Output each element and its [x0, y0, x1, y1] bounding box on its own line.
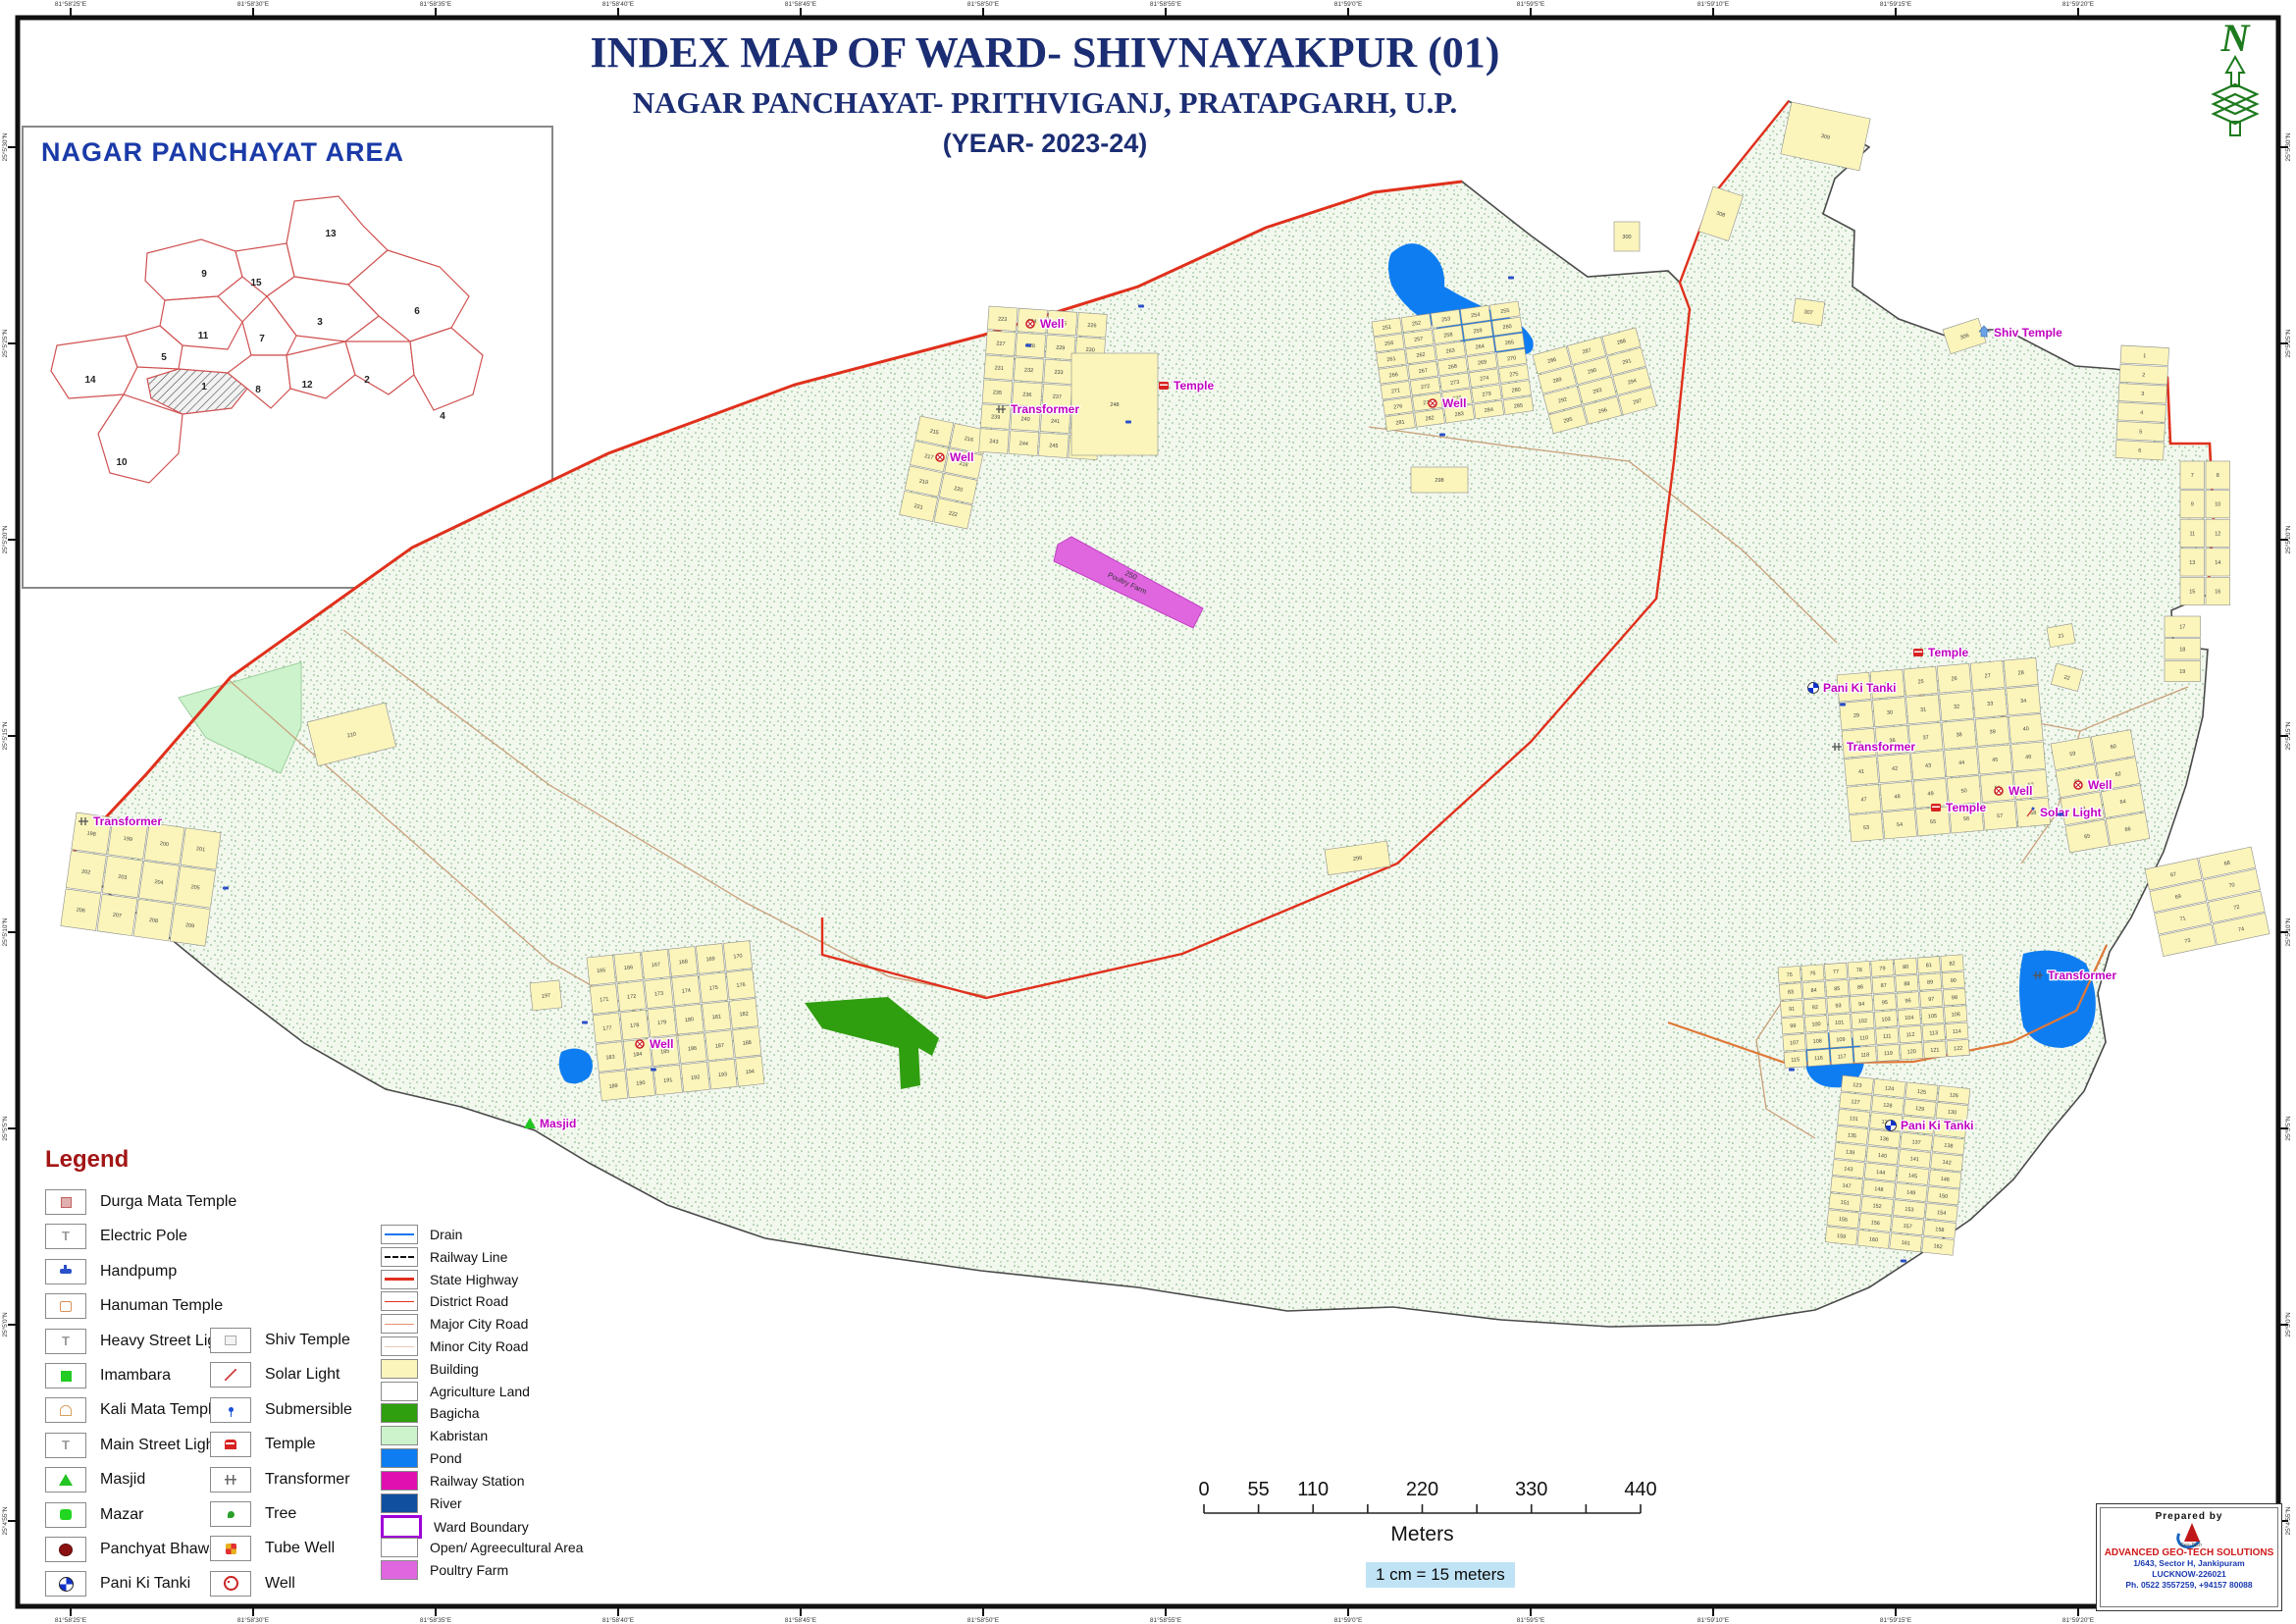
- legend-label: Durga Mata Temple: [100, 1193, 236, 1211]
- legend-item: Building: [381, 1359, 479, 1379]
- svg-text:11: 11: [198, 331, 209, 341]
- well-icon: [210, 1571, 251, 1597]
- pole-icon: T: [45, 1433, 86, 1458]
- legend-label: Shiv Temple: [265, 1332, 350, 1349]
- map-label: Transformer: [93, 814, 162, 828]
- inset-ward-4: [410, 328, 483, 410]
- svg-text:47: 47: [1860, 797, 1867, 804]
- svg-text:84: 84: [1810, 988, 1817, 994]
- svg-text:240: 240: [1020, 416, 1030, 423]
- handpump-icon: [2058, 813, 2063, 816]
- svg-text:14: 14: [2215, 560, 2220, 566]
- svg-text:2: 2: [364, 375, 370, 386]
- handpump-icon: [1125, 421, 1131, 424]
- svg-text:202: 202: [81, 869, 91, 876]
- shiv-icon: [210, 1328, 251, 1353]
- inset-title: NAGAR PANCHAYAT AREA: [41, 137, 404, 168]
- legend-item: Submersible: [210, 1397, 352, 1423]
- svg-text:139: 139: [1846, 1149, 1855, 1156]
- svg-text:37: 37: [1922, 735, 1929, 742]
- legend-swatch-outline: [381, 1515, 422, 1539]
- handpump-icon: [1439, 434, 1445, 437]
- building-cluster-67-74: 6768697071727374: [2145, 847, 2270, 957]
- svg-text:60: 60: [2110, 744, 2116, 751]
- inset-ward-12: [287, 341, 355, 398]
- sub-icon: [210, 1397, 251, 1423]
- inset-ward-map: 139156311751418122410: [51, 196, 483, 483]
- svg-text:100: 100: [1811, 1022, 1821, 1028]
- legend-item: Bagicha: [381, 1403, 480, 1423]
- tanki-icon: [45, 1571, 86, 1597]
- svg-text:25°5'30"N: 25°5'30"N: [1, 132, 9, 161]
- svg-text:25°5'0"N: 25°5'0"N: [1, 1312, 9, 1337]
- svg-text:Meters: Meters: [1390, 1523, 1453, 1545]
- map-label: Transformer: [1011, 402, 1079, 416]
- svg-text:25°5'15"N: 25°5'15"N: [1, 721, 9, 750]
- svg-text:261: 261: [1386, 356, 1396, 363]
- legend-label: Kabristan: [430, 1428, 488, 1443]
- svg-text:81°58'30"E: 81°58'30"E: [237, 1616, 270, 1624]
- legend-item: State Highway: [381, 1270, 518, 1289]
- svg-text:260: 260: [1502, 324, 1512, 331]
- svg-text:194: 194: [746, 1069, 756, 1075]
- svg-text:66: 66: [2124, 826, 2131, 833]
- svg-text:144: 144: [1876, 1170, 1886, 1177]
- svg-text:169: 169: [705, 956, 715, 963]
- svg-text:283: 283: [1454, 411, 1464, 418]
- svg-text:81: 81: [1926, 963, 1933, 969]
- svg-text:165: 165: [597, 968, 606, 974]
- building-197: 197: [530, 980, 562, 1011]
- svg-text:263: 263: [1445, 348, 1455, 355]
- svg-text:122: 122: [1954, 1046, 1963, 1053]
- svg-text:207: 207: [112, 913, 122, 919]
- svg-text:81°59'15"E: 81°59'15"E: [1880, 0, 1912, 8]
- temple-icon: [210, 1432, 251, 1457]
- durga-icon: [45, 1189, 86, 1215]
- svg-text:81°58'35"E: 81°58'35"E: [420, 1616, 452, 1624]
- svg-text:43: 43: [1925, 763, 1932, 770]
- svg-text:118: 118: [1860, 1052, 1869, 1059]
- svg-text:274: 274: [1480, 376, 1489, 383]
- svg-text:156: 156: [1870, 1220, 1880, 1227]
- svg-text:105: 105: [1928, 1014, 1938, 1021]
- svg-text:N: N: [2220, 16, 2252, 60]
- svg-text:74: 74: [2238, 926, 2245, 933]
- svg-text:81°58'30"E: 81°58'30"E: [237, 0, 270, 8]
- legend-label: Pond: [430, 1450, 462, 1466]
- main-map-svg: 81°58'25"E81°58'25"E81°58'30"E81°58'30"E…: [0, 0, 2296, 1624]
- legend-label: Well: [265, 1575, 295, 1593]
- svg-text:184: 184: [633, 1052, 643, 1059]
- svg-text:152: 152: [1872, 1203, 1882, 1210]
- svg-text:177: 177: [602, 1025, 612, 1032]
- handpump-icon: [1138, 305, 1144, 308]
- svg-text:17: 17: [2179, 625, 2185, 631]
- svg-text:25°5'20"N: 25°5'20"N: [1, 525, 9, 553]
- svg-text:25°5'5"N: 25°5'5"N: [2284, 1116, 2292, 1141]
- svg-text:166: 166: [624, 965, 634, 971]
- svg-text:81°59'5"E: 81°59'5"E: [1517, 1616, 1545, 1624]
- svg-text:9: 9: [201, 269, 207, 280]
- svg-text:183: 183: [605, 1054, 615, 1061]
- svg-text:298: 298: [1435, 478, 1443, 484]
- svg-text:128: 128: [1883, 1103, 1893, 1110]
- svg-text:190: 190: [636, 1080, 646, 1087]
- legend-swatch-fill: [381, 1359, 418, 1379]
- svg-text:192: 192: [691, 1074, 701, 1081]
- svg-text:62: 62: [2114, 771, 2121, 778]
- legend-item: Mazar: [45, 1502, 143, 1528]
- svg-text:167: 167: [652, 962, 661, 969]
- svg-text:88: 88: [1904, 981, 1910, 987]
- handpump-icon: [582, 1022, 588, 1024]
- page-subtitle: NAGAR PANCHAYAT- PRITHVIGANJ, PRATAPGARH…: [549, 85, 1540, 121]
- svg-text:130: 130: [1948, 1109, 1957, 1116]
- svg-text:111: 111: [1883, 1033, 1892, 1040]
- svg-text:46: 46: [2025, 755, 2032, 761]
- svg-text:149: 149: [1906, 1190, 1916, 1197]
- svg-text:230: 230: [1085, 347, 1095, 354]
- legend-title: Legend: [45, 1146, 129, 1174]
- legend-label: Hanuman Temple: [100, 1297, 223, 1315]
- svg-text:236: 236: [1022, 392, 1032, 398]
- legend-item: THeavy Street Light: [45, 1329, 230, 1354]
- map-label: Solar Light: [2040, 806, 2102, 819]
- svg-text:107: 107: [1790, 1040, 1800, 1047]
- building-300: 300: [1614, 222, 1640, 251]
- svg-text:10: 10: [116, 457, 128, 468]
- svg-text:33: 33: [1987, 702, 1994, 708]
- legend-label: Open/ Agreecultural Area: [430, 1540, 583, 1555]
- legend-label: Railway Line: [430, 1249, 507, 1265]
- svg-text:13: 13: [2189, 560, 2195, 566]
- svg-text:120: 120: [1906, 1049, 1916, 1056]
- svg-text:154: 154: [1937, 1210, 1947, 1217]
- scale-note: 1 cm = 15 meters: [1366, 1562, 1515, 1588]
- svg-text:187: 187: [715, 1043, 725, 1050]
- svg-text:209: 209: [185, 922, 195, 929]
- svg-text:140: 140: [1878, 1153, 1888, 1160]
- svg-text:7: 7: [2191, 473, 2194, 479]
- mazar-icon: [45, 1502, 86, 1528]
- svg-text:81°58'35"E: 81°58'35"E: [420, 0, 452, 8]
- svg-text:227: 227: [996, 341, 1006, 347]
- svg-text:71: 71: [2179, 916, 2186, 922]
- handpump-icon: [223, 887, 229, 890]
- legend-item: Minor City Road: [381, 1336, 528, 1356]
- company-address-2: LUCKNOW-226021: [2101, 1569, 2277, 1580]
- svg-text:114: 114: [1953, 1028, 1961, 1035]
- svg-text:6: 6: [414, 306, 420, 317]
- svg-text:181: 181: [711, 1014, 721, 1021]
- svg-text:148: 148: [1874, 1186, 1884, 1193]
- svg-text:12: 12: [301, 380, 313, 391]
- svg-text:55: 55: [1248, 1479, 1270, 1500]
- handpump-icon: [1789, 1069, 1795, 1072]
- svg-text:245: 245: [1049, 443, 1059, 449]
- svg-text:25°5'5"N: 25°5'5"N: [1, 1116, 9, 1141]
- svg-text:19: 19: [2179, 669, 2185, 675]
- legend-swatch-fill: [381, 1471, 418, 1491]
- legend-label: Mazar: [100, 1506, 143, 1524]
- svg-text:32: 32: [1954, 705, 1960, 711]
- map-label: Well: [2009, 784, 2032, 798]
- svg-text:121: 121: [1930, 1047, 1940, 1054]
- page-title: INDEX MAP OF WARD- SHIVNAYAKPUR (01): [549, 27, 1540, 78]
- svg-text:188: 188: [742, 1040, 752, 1047]
- svg-text:172: 172: [627, 994, 637, 1001]
- temple-icon: [1913, 649, 1923, 656]
- inset-ward-14: [51, 336, 137, 398]
- svg-text:330: 330: [1515, 1479, 1547, 1500]
- svg-text:159: 159: [1837, 1233, 1847, 1240]
- svg-text:226: 226: [1087, 323, 1097, 330]
- svg-text:7: 7: [259, 334, 265, 344]
- svg-text:276: 276: [1393, 403, 1403, 410]
- svg-text:123: 123: [1852, 1082, 1862, 1089]
- svg-text:5: 5: [161, 352, 167, 363]
- handpump-icon: [651, 1069, 656, 1072]
- svg-text:269: 269: [1478, 359, 1487, 366]
- svg-text:170: 170: [733, 954, 743, 961]
- company-address-1: 1/643, Sector H, Jankipuram: [2101, 1558, 2277, 1569]
- legend-item: Agriculture Land: [381, 1382, 530, 1401]
- svg-text:81°59'0"E: 81°59'0"E: [1334, 0, 1363, 8]
- imambara-icon: [45, 1363, 86, 1388]
- svg-text:25°5'30"N: 25°5'30"N: [2284, 132, 2292, 161]
- svg-text:106: 106: [1951, 1012, 1960, 1019]
- svg-text:197: 197: [542, 993, 551, 1000]
- map-label: Temple: [1946, 801, 1986, 814]
- legend-label: Drain: [430, 1227, 462, 1242]
- svg-text:89: 89: [1927, 979, 1934, 985]
- legend-item: Poultry Farm: [381, 1560, 508, 1580]
- svg-text:179: 179: [657, 1020, 667, 1026]
- legend-swatch-fill: [381, 1493, 418, 1513]
- svg-text:102: 102: [1858, 1019, 1868, 1025]
- svg-text:251: 251: [1383, 325, 1392, 332]
- svg-text:75: 75: [1787, 972, 1794, 978]
- svg-text:15: 15: [2189, 590, 2195, 596]
- legend-item: Panchyat Bhawan: [45, 1537, 227, 1562]
- svg-text:95: 95: [1882, 1000, 1889, 1006]
- svg-text:244: 244: [1019, 441, 1029, 447]
- svg-text:25°5'20"N: 25°5'20"N: [2284, 525, 2292, 553]
- svg-text:168: 168: [678, 959, 688, 966]
- svg-text:25°5'10"N: 25°5'10"N: [1, 917, 9, 946]
- masjid-icon: [45, 1467, 86, 1493]
- svg-text:81°58'25"E: 81°58'25"E: [55, 0, 87, 8]
- svg-text:6: 6: [2138, 448, 2141, 454]
- svg-text:82: 82: [1949, 961, 1956, 967]
- svg-text:182: 182: [739, 1011, 749, 1018]
- svg-text:186: 186: [688, 1046, 698, 1053]
- legend-item: Solar Light: [210, 1362, 340, 1388]
- legend-label: Ward Boundary: [434, 1519, 529, 1535]
- handpump-icon: [1508, 277, 1514, 280]
- svg-text:49: 49: [1927, 791, 1934, 798]
- svg-text:124: 124: [1885, 1085, 1895, 1092]
- legend-label: Panchyat Bhawan: [100, 1541, 227, 1558]
- svg-text:142: 142: [1942, 1160, 1952, 1167]
- legend-item: Imambara: [45, 1363, 171, 1388]
- well-icon: [2074, 781, 2082, 789]
- svg-text:81°59'20"E: 81°59'20"E: [2062, 1616, 2095, 1624]
- svg-text:5: 5: [2139, 429, 2142, 435]
- svg-text:15: 15: [250, 278, 262, 288]
- legend-swatch-line: [381, 1314, 418, 1334]
- legend-item: Kabristan: [381, 1426, 488, 1445]
- svg-text:78: 78: [1856, 968, 1863, 973]
- legend-label: Major City Road: [430, 1316, 528, 1332]
- svg-text:273: 273: [1450, 380, 1460, 387]
- svg-text:189: 189: [608, 1083, 618, 1090]
- legend-label: Electric Pole: [100, 1228, 187, 1245]
- svg-text:81°59'10"E: 81°59'10"E: [1697, 1616, 1730, 1624]
- svg-text:2: 2: [2142, 372, 2145, 378]
- svg-text:162: 162: [1933, 1243, 1943, 1250]
- svg-text:176: 176: [736, 982, 746, 989]
- legend-label: Tube Well: [265, 1540, 335, 1557]
- map-label: Well: [1442, 396, 1466, 410]
- svg-text:11: 11: [2189, 531, 2195, 537]
- legend-label: Tree: [265, 1505, 296, 1523]
- legend-label: Masjid: [100, 1471, 145, 1489]
- svg-text:8: 8: [255, 385, 261, 395]
- svg-text:145: 145: [1908, 1173, 1918, 1179]
- legend-label: Handpump: [100, 1263, 177, 1281]
- svg-text:108: 108: [1813, 1038, 1823, 1045]
- svg-text:307: 307: [1803, 309, 1813, 316]
- svg-text:91: 91: [1789, 1007, 1796, 1013]
- legend-label: Minor City Road: [430, 1338, 528, 1354]
- svg-text:119: 119: [1884, 1051, 1893, 1058]
- legend-swatch-line: [381, 1225, 418, 1244]
- svg-text:191: 191: [663, 1077, 673, 1084]
- svg-text:146: 146: [1940, 1177, 1950, 1183]
- legend-label: Poultry Farm: [430, 1562, 508, 1578]
- svg-text:284: 284: [1484, 407, 1493, 414]
- legend-item: Railway Line: [381, 1247, 507, 1267]
- svg-text:25°5'0"N: 25°5'0"N: [2284, 1312, 2292, 1337]
- svg-text:201: 201: [196, 846, 206, 853]
- svg-text:267: 267: [1418, 368, 1428, 375]
- svg-text:76: 76: [1809, 970, 1816, 976]
- well-icon: [936, 453, 944, 461]
- svg-text:25°5'25"N: 25°5'25"N: [2284, 329, 2292, 357]
- svg-text:92: 92: [1812, 1005, 1819, 1011]
- svg-text:81°59'0"E: 81°59'0"E: [1334, 1616, 1363, 1624]
- svg-text:4: 4: [440, 411, 445, 422]
- svg-text:29: 29: [1853, 712, 1860, 719]
- svg-text:27: 27: [1984, 673, 1991, 680]
- legend-label: Solar Light: [265, 1366, 340, 1384]
- svg-text:113: 113: [1929, 1030, 1938, 1037]
- svg-text:59: 59: [2069, 751, 2076, 758]
- svg-text:285: 285: [1514, 403, 1524, 410]
- svg-text:266: 266: [1388, 372, 1398, 379]
- company-name: ADVANCED GEO-TECH SOLUTIONS: [2101, 1547, 2277, 1558]
- legend-item: Masjid: [45, 1467, 145, 1493]
- svg-text:26: 26: [1951, 676, 1957, 683]
- svg-text:85: 85: [1834, 986, 1841, 992]
- svg-text:175: 175: [708, 985, 718, 992]
- svg-text:262: 262: [1416, 352, 1426, 359]
- building-cluster-17-19: 171819: [2165, 616, 2201, 682]
- legend-item: Durga Mata Temple: [45, 1189, 236, 1215]
- map-label: Well: [950, 450, 973, 464]
- inset-ward-2: [345, 341, 414, 394]
- svg-text:109: 109: [1836, 1037, 1846, 1044]
- svg-text:80: 80: [1903, 965, 1909, 970]
- legend-item: District Road: [381, 1291, 508, 1311]
- svg-text:143: 143: [1844, 1167, 1853, 1174]
- svg-text:69: 69: [2174, 894, 2181, 901]
- svg-text:81°58'45"E: 81°58'45"E: [785, 1616, 817, 1624]
- legend-label: River: [430, 1495, 462, 1511]
- legend-label: Railway Station: [430, 1473, 525, 1489]
- svg-text:103: 103: [1881, 1017, 1891, 1023]
- svg-text:56: 56: [1963, 816, 1970, 823]
- svg-text:81°58'50"E: 81°58'50"E: [967, 1616, 1000, 1624]
- svg-text:255: 255: [1500, 308, 1510, 315]
- map-label: Transformer: [2048, 969, 2116, 982]
- svg-text:1: 1: [201, 382, 207, 393]
- legend-item: Major City Road: [381, 1314, 528, 1334]
- svg-text:25°4'55"N: 25°4'55"N: [2284, 1506, 2292, 1535]
- svg-text:235: 235: [993, 390, 1003, 396]
- legend-item: TMain Street Light: [45, 1433, 219, 1458]
- handpump-icon: [45, 1259, 86, 1284]
- svg-text:129: 129: [1915, 1106, 1925, 1113]
- svg-text:39: 39: [1989, 729, 1996, 736]
- svg-text:252: 252: [1412, 321, 1422, 328]
- svg-text:83: 83: [1788, 989, 1795, 995]
- panchyat-icon: [45, 1537, 86, 1562]
- legend-swatch-fill: [381, 1403, 418, 1423]
- svg-text:70: 70: [2228, 882, 2235, 889]
- svg-text:158: 158: [1935, 1227, 1945, 1233]
- svg-text:81°59'15"E: 81°59'15"E: [1880, 1616, 1912, 1624]
- svg-text:31: 31: [1920, 707, 1927, 713]
- svg-text:229: 229: [1056, 345, 1066, 352]
- svg-text:280: 280: [1511, 387, 1521, 393]
- svg-text:239: 239: [991, 414, 1001, 421]
- svg-text:94: 94: [1858, 1002, 1865, 1008]
- svg-text:41: 41: [1858, 769, 1865, 776]
- svg-text:204: 204: [154, 879, 164, 886]
- svg-text:208: 208: [148, 917, 158, 924]
- legend-label: Submersible: [265, 1401, 352, 1419]
- legend-item: Temple: [210, 1432, 316, 1457]
- svg-text:38: 38: [1956, 732, 1962, 739]
- legend-label: Temple: [265, 1436, 316, 1453]
- svg-text:73: 73: [2184, 938, 2191, 945]
- handpump-icon: [1025, 344, 1031, 347]
- tree-icon: [210, 1501, 251, 1527]
- svg-text:0: 0: [1198, 1479, 1209, 1500]
- svg-text:104: 104: [1905, 1015, 1914, 1022]
- svg-text:79: 79: [1879, 966, 1886, 971]
- svg-text:173: 173: [654, 991, 664, 998]
- building-248: 248: [1071, 353, 1158, 455]
- svg-text:25°5'10"N: 25°5'10"N: [2284, 917, 2292, 946]
- svg-text:93: 93: [1835, 1003, 1842, 1009]
- legend-swatch-dash: [381, 1247, 418, 1267]
- svg-text:77: 77: [1833, 969, 1840, 975]
- north-arrow: N: [2214, 16, 2257, 135]
